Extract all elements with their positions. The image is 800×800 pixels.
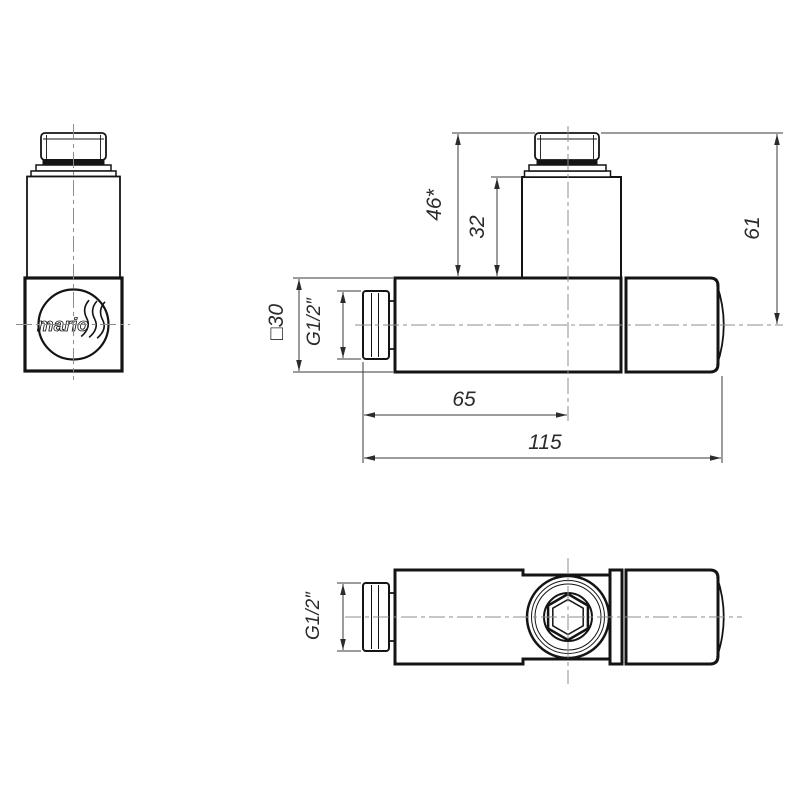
- dim61-arrow-up: [774, 134, 780, 145]
- dim46-arrow-down: [455, 265, 461, 276]
- dim115-arrow-left: [364, 455, 375, 461]
- dim-label-61: 61: [741, 216, 764, 239]
- dim-label-g12-bottom: G1/2″: [303, 591, 324, 640]
- dim-label-32: 32: [466, 215, 489, 239]
- valve-drawing-svg: mario: [0, 0, 800, 800]
- side-knob-stem: [522, 177, 621, 278]
- dim-label-65: 65: [452, 388, 476, 411]
- dim32-arrow-down: [494, 265, 500, 276]
- dimg12s-arrow-up: [340, 292, 346, 303]
- dim65-arrow-right: [556, 412, 567, 418]
- dim-label-115: 115: [528, 431, 562, 454]
- dim65-arrow-left: [364, 412, 375, 418]
- dim30-arrow-up: [296, 279, 302, 290]
- dimg12b-arrow-up: [340, 584, 346, 595]
- dimg12b-arrow-down: [340, 639, 346, 650]
- technical-drawing-canvas: mario: [0, 0, 800, 800]
- dim32-arrow-up: [494, 178, 500, 189]
- dim-label-g12-side: G1/2″: [304, 297, 325, 346]
- dim46-arrow-up: [455, 134, 461, 145]
- dim30-arrow-down: [296, 360, 302, 371]
- dim115-arrow-right: [710, 455, 721, 461]
- side-knob-cap: [535, 133, 599, 160]
- side-view: [363, 133, 724, 372]
- dim-label-square30: □30: [265, 304, 288, 340]
- dim-label-46: 46*: [423, 188, 446, 220]
- dim61-arrow-down: [774, 313, 780, 324]
- dimg12s-arrow-down: [340, 347, 346, 358]
